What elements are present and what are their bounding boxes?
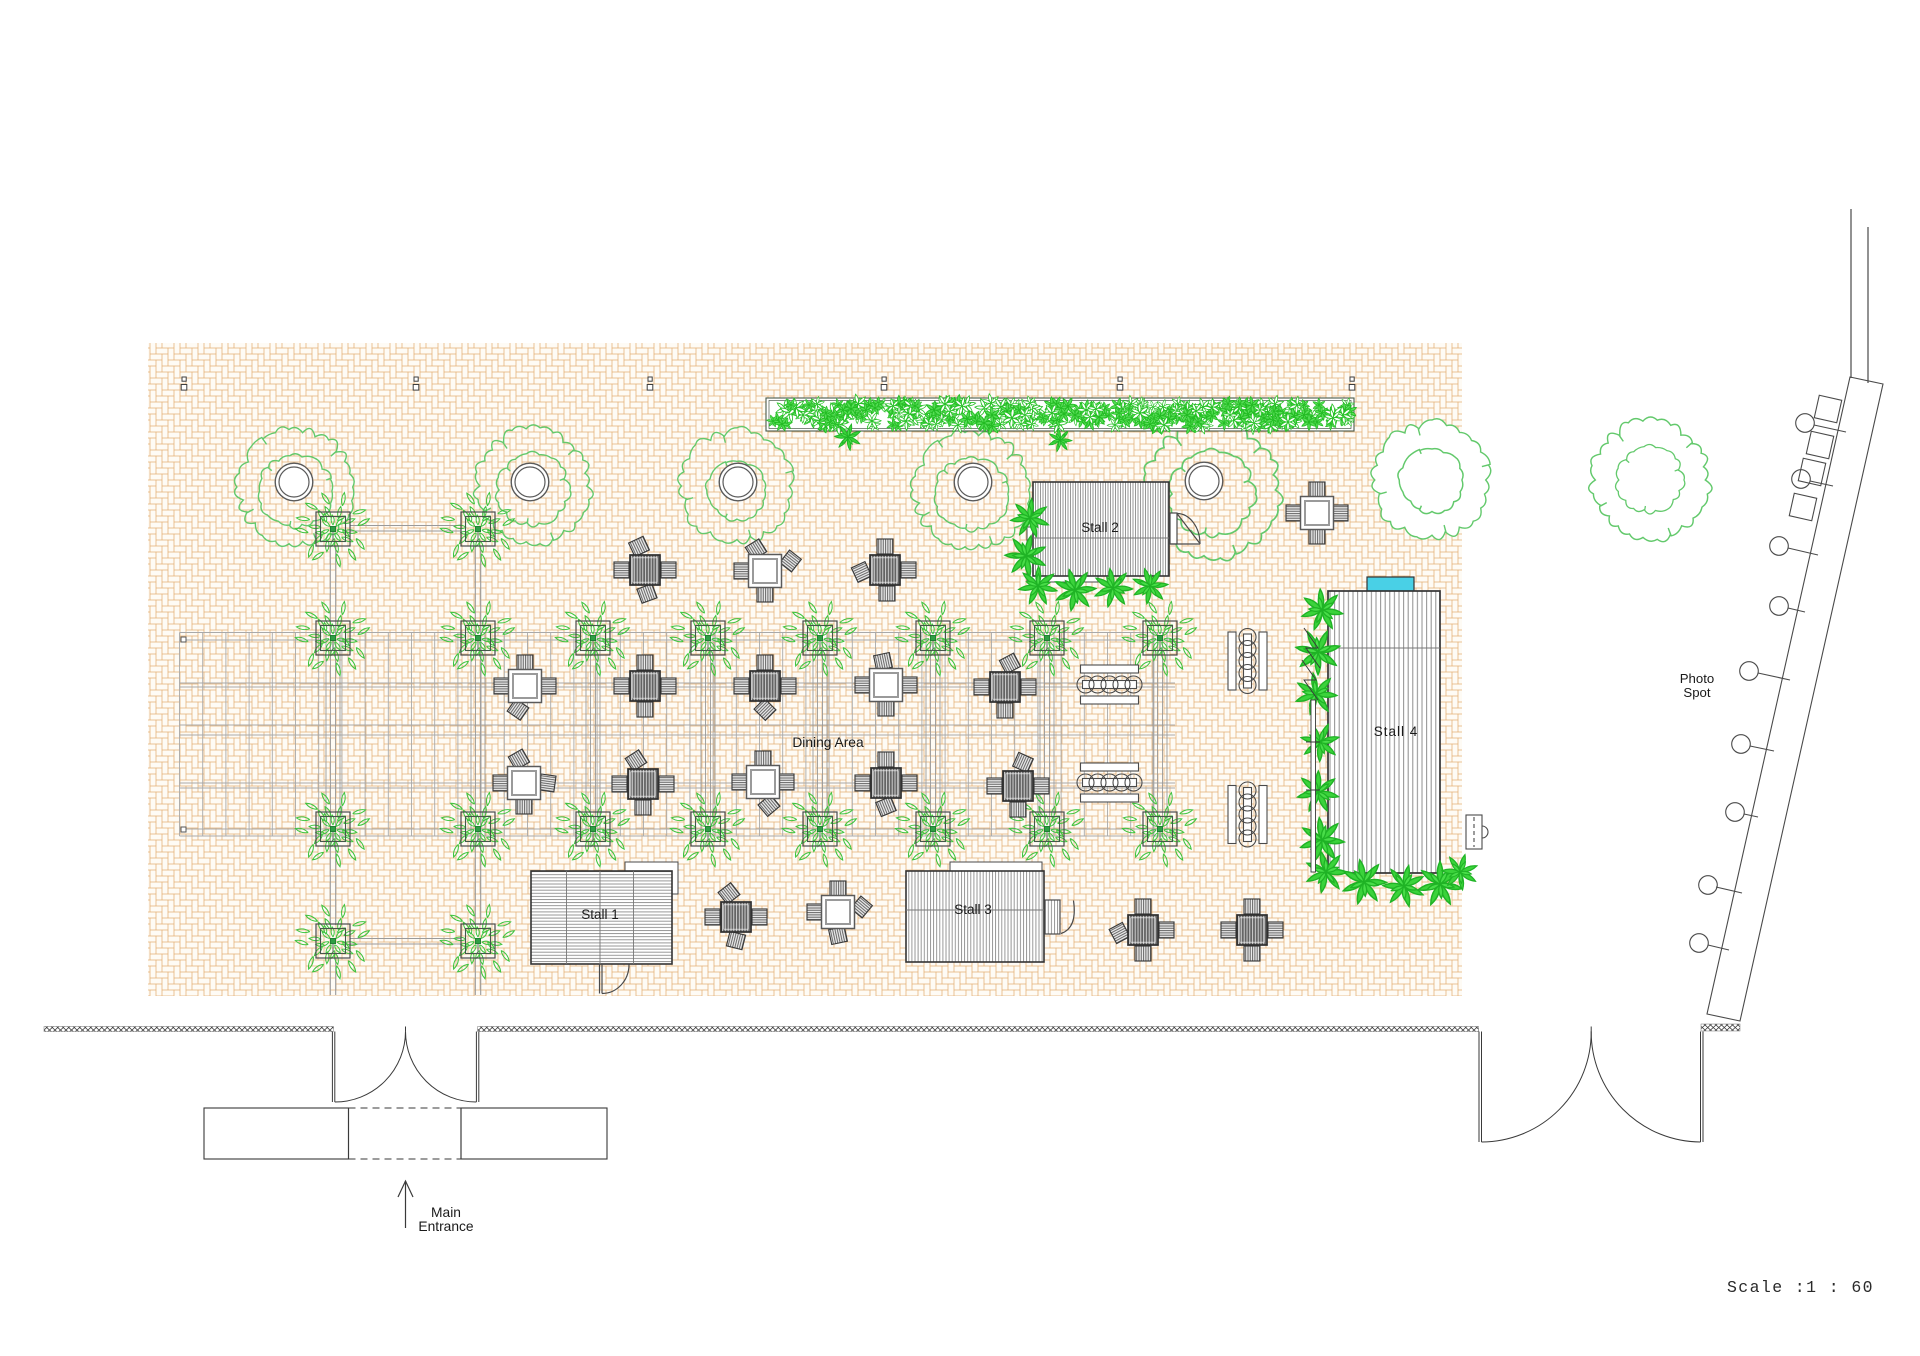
svg-text:Stall 4: Stall 4 — [1374, 724, 1419, 739]
svg-text:Spot: Spot — [1683, 685, 1710, 700]
svg-text:Stall 2: Stall 2 — [1081, 520, 1119, 535]
svg-text:Entrance: Entrance — [418, 1219, 474, 1234]
svg-text:Photo: Photo — [1680, 671, 1714, 686]
svg-text:Main: Main — [431, 1205, 461, 1220]
svg-text:Scale :1 : 60: Scale :1 : 60 — [1727, 1278, 1874, 1297]
svg-text:Stall 3: Stall 3 — [954, 902, 992, 917]
svg-text:Stall 1: Stall 1 — [581, 907, 619, 922]
svg-text:Dining Area: Dining Area — [792, 735, 864, 750]
